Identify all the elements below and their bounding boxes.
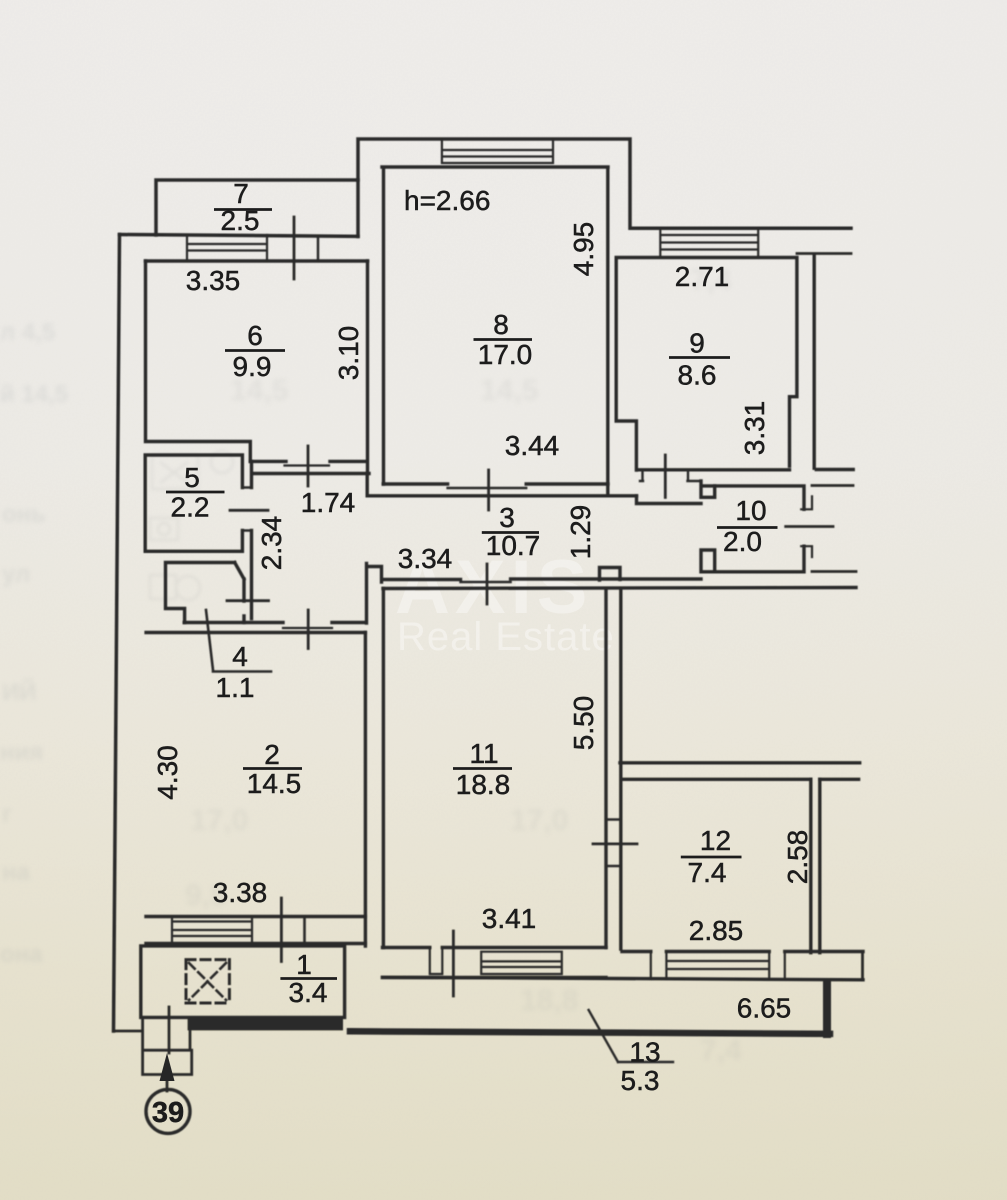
svg-text:3.34: 3.34 bbox=[398, 543, 453, 574]
svg-text:14,5: 14,5 bbox=[480, 374, 538, 407]
svg-text:7,4: 7,4 bbox=[700, 1034, 742, 1067]
svg-text:3.41: 3.41 bbox=[482, 903, 537, 934]
svg-text:h=2.66: h=2.66 bbox=[404, 185, 490, 216]
svg-text:2.0: 2.0 bbox=[723, 526, 762, 557]
svg-text:12: 12 bbox=[700, 825, 731, 856]
svg-text:10.7: 10.7 bbox=[486, 530, 541, 561]
svg-text:1: 1 bbox=[296, 949, 312, 980]
svg-text:ул: ул bbox=[2, 561, 30, 588]
svg-text:7.4: 7.4 bbox=[688, 857, 727, 888]
svg-text:онь: онь bbox=[2, 501, 46, 528]
svg-text:2.58: 2.58 bbox=[782, 830, 813, 885]
svg-text:14.5: 14.5 bbox=[247, 768, 302, 799]
svg-text:ния: ния bbox=[0, 739, 43, 766]
svg-text:9: 9 bbox=[689, 328, 705, 359]
svg-text:5.3: 5.3 bbox=[621, 1065, 660, 1096]
svg-text:2: 2 bbox=[264, 739, 280, 770]
svg-text:10: 10 bbox=[735, 495, 766, 526]
svg-text:3.35: 3.35 bbox=[186, 265, 241, 296]
svg-text:9.9: 9.9 bbox=[233, 351, 272, 382]
svg-text:5: 5 bbox=[184, 462, 200, 493]
svg-text:13: 13 bbox=[629, 1037, 660, 1068]
svg-text:39: 39 bbox=[152, 1097, 184, 1129]
svg-text:3.31: 3.31 bbox=[739, 401, 770, 456]
svg-text:3.4: 3.4 bbox=[289, 977, 328, 1008]
svg-text:6: 6 bbox=[247, 320, 263, 351]
svg-text:18,8: 18,8 bbox=[520, 984, 578, 1017]
svg-text:3.38: 3.38 bbox=[213, 877, 268, 908]
svg-text:на: на bbox=[2, 859, 30, 886]
svg-text:11: 11 bbox=[469, 738, 498, 769]
svg-text:ИЙ: ИЙ bbox=[2, 678, 37, 706]
svg-text:5.50: 5.50 bbox=[568, 696, 599, 751]
svg-text:4.95: 4.95 bbox=[568, 222, 599, 277]
svg-text:она: она bbox=[0, 941, 43, 968]
svg-text:3.44: 3.44 bbox=[505, 430, 560, 461]
svg-text:2.85: 2.85 bbox=[689, 915, 744, 946]
svg-text:3: 3 bbox=[499, 502, 515, 533]
svg-text:17,0: 17,0 bbox=[510, 804, 568, 837]
svg-text:1.1: 1.1 bbox=[216, 672, 255, 703]
svg-text:й 14,5: й 14,5 bbox=[0, 381, 68, 408]
svg-text:4.30: 4.30 bbox=[152, 745, 183, 800]
svg-text:8: 8 bbox=[493, 309, 509, 340]
svg-text:6.65: 6.65 bbox=[737, 993, 792, 1024]
svg-text:17.0: 17.0 bbox=[478, 339, 533, 370]
svg-text:3.10: 3.10 bbox=[333, 326, 364, 381]
svg-text:г: г bbox=[2, 801, 12, 828]
svg-text:2.71: 2.71 bbox=[675, 261, 730, 292]
svg-text:1.29: 1.29 bbox=[565, 505, 596, 560]
svg-text:л 4,5: л 4,5 bbox=[0, 319, 55, 346]
svg-text:2.2: 2.2 bbox=[171, 492, 210, 523]
svg-text:17,0: 17,0 bbox=[190, 804, 248, 837]
svg-text:8.6: 8.6 bbox=[678, 360, 717, 391]
svg-text:1.74: 1.74 bbox=[301, 487, 356, 518]
svg-text:4: 4 bbox=[232, 641, 248, 672]
svg-text:2.34: 2.34 bbox=[256, 516, 287, 571]
svg-text:Real Estate: Real Estate bbox=[397, 615, 615, 659]
svg-text:18.8: 18.8 bbox=[456, 769, 511, 800]
